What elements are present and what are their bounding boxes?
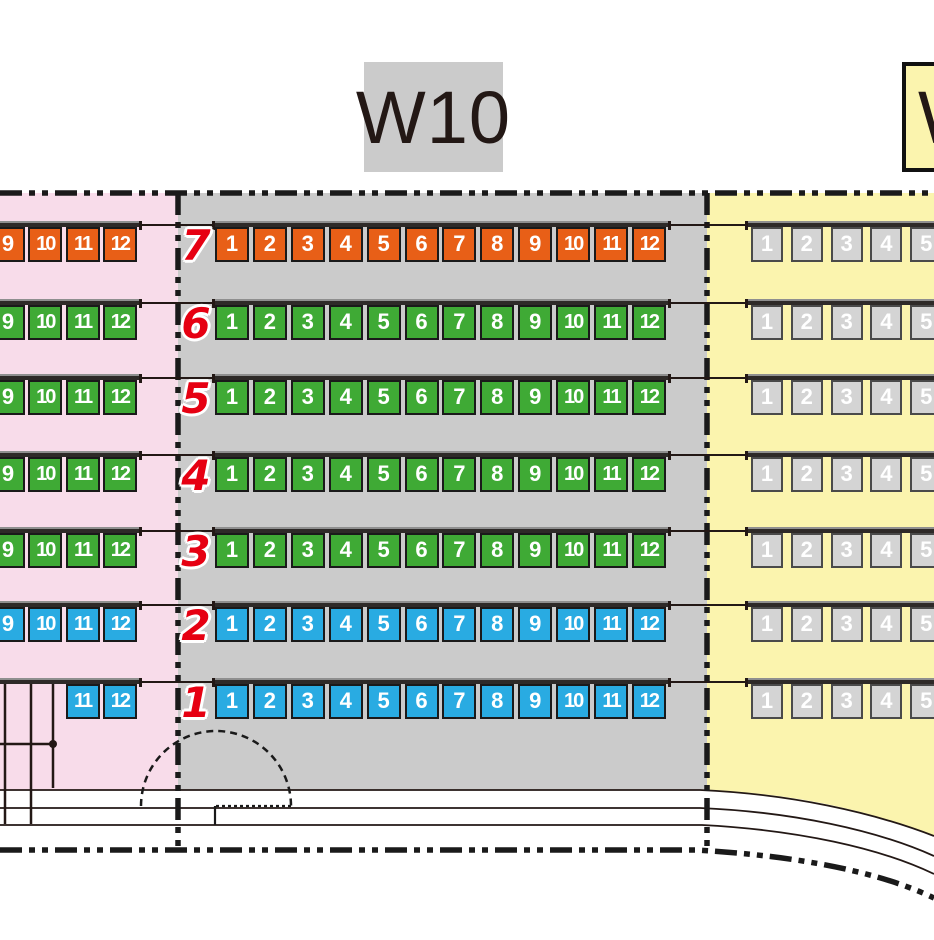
seat[interactable]: 12 (103, 684, 137, 719)
row-number: 1 (177, 678, 215, 727)
seat[interactable]: 10 (28, 380, 62, 415)
desk-bar-end (139, 221, 142, 230)
seat[interactable]: 10 (556, 305, 590, 340)
seat[interactable]: 9 (518, 684, 552, 719)
seat[interactable]: 7 (442, 533, 476, 568)
seat[interactable]: 6 (405, 533, 439, 568)
seat[interactable]: 4 (870, 380, 902, 415)
seat[interactable]: 2 (253, 533, 287, 568)
desk-bar-end (745, 678, 748, 687)
seat[interactable]: 5 (367, 457, 401, 492)
seat[interactable]: 3 (831, 607, 863, 642)
seat[interactable]: 10 (556, 457, 590, 492)
desk-bar-end (668, 601, 671, 610)
desk-bar-end (668, 678, 671, 687)
seat[interactable]: 1 (751, 380, 783, 415)
seat[interactable]: 10 (556, 607, 590, 642)
seat[interactable]: 8 (480, 227, 514, 262)
seat[interactable]: 3 (831, 380, 863, 415)
seat[interactable]: 11 (66, 684, 100, 719)
seat[interactable]: 1 (751, 607, 783, 642)
seat[interactable]: 1 (215, 533, 249, 568)
seat[interactable]: 3 (291, 457, 325, 492)
desk-bar-end (139, 374, 142, 383)
row-number: 6 (177, 299, 215, 348)
seat[interactable]: 3 (831, 305, 863, 340)
seat[interactable]: 3 (291, 227, 325, 262)
seat[interactable]: 1 (751, 305, 783, 340)
seat[interactable]: 7 (442, 607, 476, 642)
seat[interactable]: 4 (870, 607, 902, 642)
block-label-text: W (918, 75, 934, 160)
seat[interactable]: 1 (751, 533, 783, 568)
row-number: 7 (177, 221, 215, 270)
seat[interactable]: 4 (329, 457, 363, 492)
seat[interactable]: 6 (405, 607, 439, 642)
desk-bar-end (668, 299, 671, 308)
seat[interactable]: 5 (910, 457, 934, 492)
seat[interactable]: 6 (405, 227, 439, 262)
seat[interactable]: 11 (66, 305, 100, 340)
seat[interactable]: 2 (791, 305, 823, 340)
seat[interactable]: 9 (518, 305, 552, 340)
seat[interactable]: 3 (831, 684, 863, 719)
desk-bar-end (139, 678, 142, 687)
seat[interactable]: 6 (405, 457, 439, 492)
seat[interactable]: 5 (910, 380, 934, 415)
desk-bar-end (668, 451, 671, 460)
desk-bar-end (668, 527, 671, 536)
seat[interactable]: 7 (442, 227, 476, 262)
seat[interactable]: 5 (910, 305, 934, 340)
seat[interactable]: 12 (103, 533, 137, 568)
seating-map: W10 W 9101112910111291011129101112910111… (0, 0, 934, 940)
seat[interactable]: 11 (594, 684, 628, 719)
seat[interactable]: 11 (594, 305, 628, 340)
seat[interactable]: 2 (791, 457, 823, 492)
seat[interactable]: 3 (291, 607, 325, 642)
block-label-right: W (902, 62, 934, 172)
seat[interactable]: 12 (632, 227, 666, 262)
seat[interactable]: 3 (831, 533, 863, 568)
seat[interactable]: 5 (910, 227, 934, 262)
seat[interactable]: 12 (103, 607, 137, 642)
row-number: 4 (177, 451, 215, 500)
desk-bar-end (139, 601, 142, 610)
desk-bar-end (745, 527, 748, 536)
seat[interactable]: 12 (632, 457, 666, 492)
seat[interactable]: 1 (751, 227, 783, 262)
seat[interactable]: 11 (594, 607, 628, 642)
desk-bar-end (668, 221, 671, 230)
seat[interactable]: 9 (0, 533, 25, 568)
desk-bar-end (745, 374, 748, 383)
desk-bar-end (668, 374, 671, 383)
desk-bar-end (745, 601, 748, 610)
seat[interactable]: 5 (910, 533, 934, 568)
seat[interactable]: 8 (480, 380, 514, 415)
seat[interactable]: 12 (632, 607, 666, 642)
desk-bar-end (745, 221, 748, 230)
block-label-w10: W10 (364, 62, 503, 172)
seat[interactable]: 9 (518, 380, 552, 415)
seat[interactable]: 11 (594, 533, 628, 568)
seat[interactable]: 9 (518, 607, 552, 642)
seat[interactable]: 4 (870, 227, 902, 262)
seat[interactable]: 4 (329, 380, 363, 415)
seat[interactable]: 12 (103, 380, 137, 415)
seat[interactable]: 11 (66, 227, 100, 262)
seat[interactable]: 9 (0, 457, 25, 492)
seat[interactable]: 1 (215, 305, 249, 340)
seat[interactable]: 1 (215, 227, 249, 262)
seat[interactable]: 3 (291, 380, 325, 415)
seat[interactable]: 12 (103, 305, 137, 340)
seat[interactable]: 9 (518, 457, 552, 492)
seat[interactable]: 10 (556, 380, 590, 415)
seat[interactable]: 3 (291, 684, 325, 719)
seat[interactable]: 1 (215, 380, 249, 415)
seat[interactable]: 4 (870, 533, 902, 568)
seat[interactable]: 2 (253, 227, 287, 262)
seat[interactable]: 4 (329, 305, 363, 340)
seat[interactable]: 5 (910, 607, 934, 642)
seat[interactable]: 8 (480, 684, 514, 719)
seat[interactable]: 4 (329, 607, 363, 642)
seat[interactable]: 2 (791, 533, 823, 568)
seat[interactable]: 5 (367, 607, 401, 642)
seat[interactable]: 2 (253, 380, 287, 415)
seat[interactable]: 3 (291, 533, 325, 568)
seat[interactable]: 11 (66, 380, 100, 415)
seat[interactable]: 2 (791, 607, 823, 642)
seat[interactable]: 2 (253, 457, 287, 492)
seat[interactable]: 11 (66, 457, 100, 492)
seat[interactable]: 2 (253, 305, 287, 340)
seat[interactable]: 1 (215, 684, 249, 719)
row-number: 5 (177, 374, 215, 423)
seat[interactable]: 8 (480, 305, 514, 340)
seat[interactable]: 10 (556, 684, 590, 719)
seat[interactable]: 9 (0, 305, 25, 340)
seat[interactable]: 6 (405, 380, 439, 415)
seat[interactable]: 11 (594, 227, 628, 262)
seat[interactable]: 10 (28, 227, 62, 262)
seat[interactable]: 5 (367, 380, 401, 415)
seat[interactable]: 12 (103, 227, 137, 262)
row-number: 3 (177, 527, 215, 576)
row-number: 2 (177, 601, 215, 650)
seat[interactable]: 4 (870, 684, 902, 719)
seat[interactable]: 10 (28, 533, 62, 568)
seat[interactable]: 8 (480, 607, 514, 642)
seat[interactable]: 7 (442, 380, 476, 415)
desk-bar-end (139, 527, 142, 536)
seat[interactable]: 9 (0, 227, 25, 262)
seat[interactable]: 5 (910, 684, 934, 719)
seat[interactable]: 6 (405, 684, 439, 719)
desk-bar-end (139, 299, 142, 308)
seat[interactable]: 10 (556, 227, 590, 262)
seat[interactable]: 12 (632, 380, 666, 415)
seat[interactable]: 7 (442, 684, 476, 719)
seat[interactable]: 11 (66, 533, 100, 568)
seat[interactable]: 8 (480, 533, 514, 568)
seat[interactable]: 5 (367, 305, 401, 340)
seat[interactable]: 1 (751, 457, 783, 492)
seat[interactable]: 2 (791, 380, 823, 415)
seat[interactable]: 10 (28, 305, 62, 340)
seat[interactable]: 3 (831, 227, 863, 262)
seat[interactable]: 8 (480, 457, 514, 492)
seat[interactable]: 9 (518, 533, 552, 568)
seat[interactable]: 4 (870, 457, 902, 492)
seat[interactable]: 12 (632, 305, 666, 340)
seat[interactable]: 4 (329, 684, 363, 719)
block-label-text: W10 (356, 75, 511, 160)
seat[interactable]: 2 (791, 227, 823, 262)
desk-bar-end (139, 451, 142, 460)
seat[interactable]: 5 (367, 533, 401, 568)
seat[interactable]: 10 (28, 457, 62, 492)
seat[interactable]: 2 (253, 684, 287, 719)
seat[interactable]: 5 (367, 227, 401, 262)
seat[interactable]: 4 (870, 305, 902, 340)
seat[interactable]: 12 (632, 533, 666, 568)
seat[interactable]: 3 (291, 305, 325, 340)
seat[interactable]: 9 (0, 380, 25, 415)
seat[interactable]: 5 (367, 684, 401, 719)
seat[interactable]: 1 (215, 457, 249, 492)
seat[interactable]: 4 (329, 533, 363, 568)
desk-bar-end (745, 299, 748, 308)
seat[interactable]: 9 (0, 607, 25, 642)
seat[interactable]: 12 (632, 684, 666, 719)
seat[interactable]: 9 (518, 227, 552, 262)
seat[interactable]: 2 (253, 607, 287, 642)
seat[interactable]: 1 (215, 607, 249, 642)
seat[interactable]: 7 (442, 457, 476, 492)
seat[interactable]: 11 (594, 457, 628, 492)
seat[interactable]: 7 (442, 305, 476, 340)
seat[interactable]: 10 (28, 607, 62, 642)
seat[interactable]: 1 (751, 684, 783, 719)
seat[interactable]: 12 (103, 457, 137, 492)
seat[interactable]: 2 (791, 684, 823, 719)
seat[interactable]: 11 (594, 380, 628, 415)
seat[interactable]: 4 (329, 227, 363, 262)
seat[interactable]: 10 (556, 533, 590, 568)
seat[interactable]: 6 (405, 305, 439, 340)
desk-bar-end (745, 451, 748, 460)
seat[interactable]: 3 (831, 457, 863, 492)
seat[interactable]: 11 (66, 607, 100, 642)
